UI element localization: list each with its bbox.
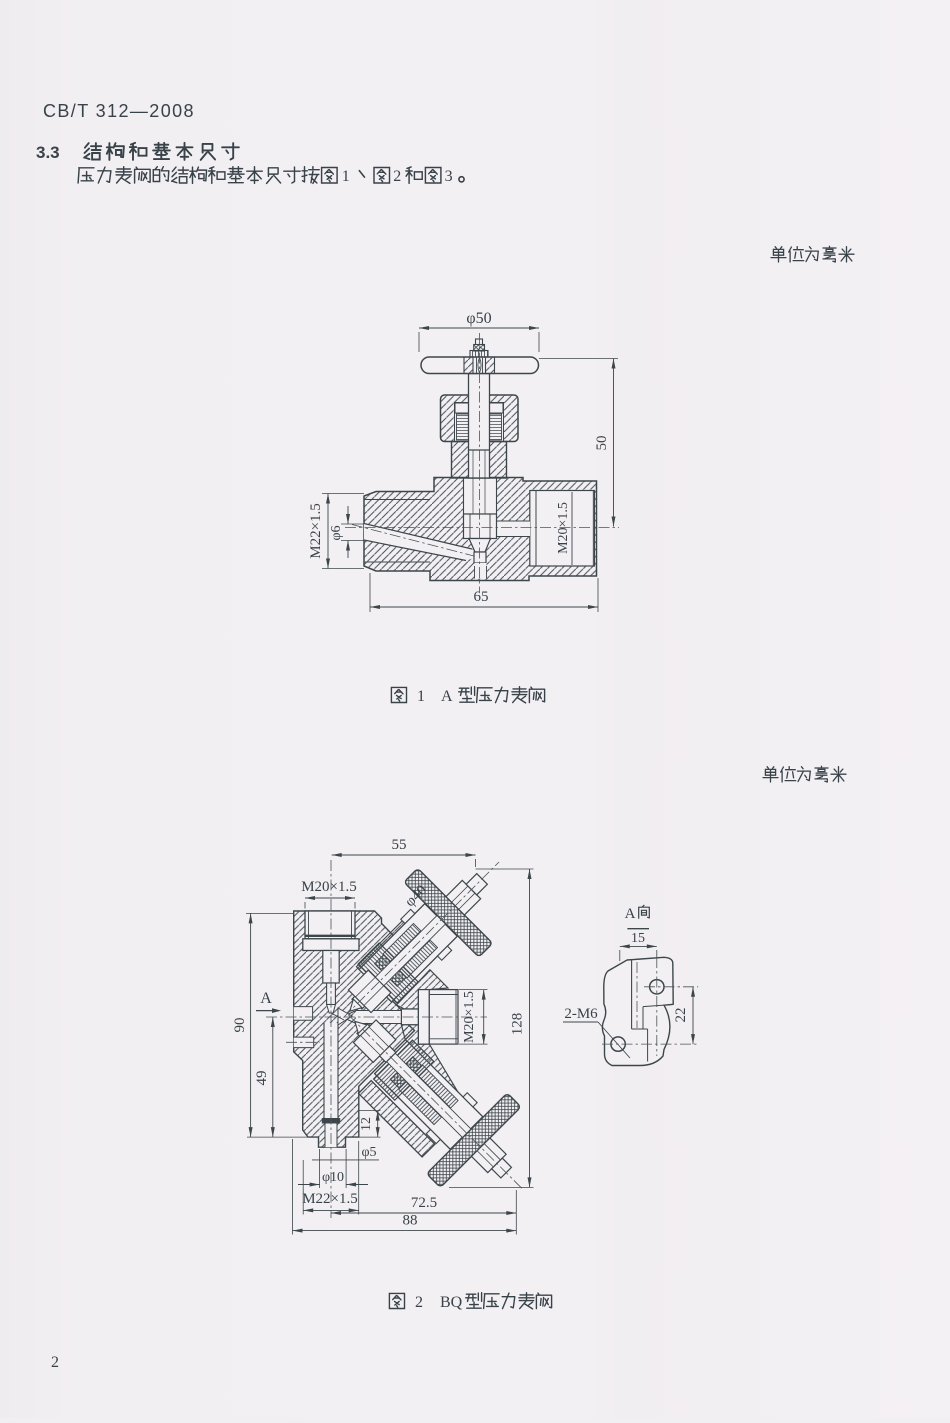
svg-text:2: 2	[51, 1354, 59, 1371]
svg-text:2: 2	[393, 168, 401, 185]
svg-text:3: 3	[445, 168, 453, 185]
svg-text:12: 12	[359, 1117, 374, 1131]
svg-text:M22×1.5: M22×1.5	[308, 503, 324, 559]
svg-text:50: 50	[594, 436, 610, 451]
svg-text:M22×1.5: M22×1.5	[302, 1191, 358, 1207]
svg-text:2-M6: 2-M6	[564, 1006, 598, 1022]
svg-text:55: 55	[392, 837, 407, 853]
svg-text:128: 128	[510, 1013, 526, 1036]
svg-text:M20×1.5: M20×1.5	[462, 991, 477, 1043]
svg-text:3.3: 3.3	[36, 143, 60, 162]
svg-text:M20×1.5: M20×1.5	[556, 502, 571, 554]
svg-text:A: A	[441, 688, 453, 705]
svg-text:φ6: φ6	[329, 525, 344, 540]
svg-text:A: A	[260, 990, 272, 1007]
svg-text:90: 90	[232, 1018, 248, 1033]
svg-text:φ50: φ50	[466, 310, 491, 327]
svg-text:CB/T 312—2008: CB/T 312—2008	[43, 101, 195, 121]
svg-text:φ10: φ10	[322, 1170, 344, 1185]
svg-text:15: 15	[631, 931, 645, 946]
svg-text:A: A	[625, 906, 636, 922]
svg-text:88: 88	[403, 1213, 418, 1229]
svg-text:65: 65	[474, 589, 489, 605]
svg-text:BQ: BQ	[440, 1294, 463, 1311]
svg-text:72.5: 72.5	[411, 1195, 437, 1211]
svg-text:1: 1	[417, 688, 425, 705]
svg-text:22: 22	[673, 1008, 689, 1023]
svg-text:M20×1.5: M20×1.5	[301, 879, 357, 895]
svg-text:2: 2	[415, 1294, 423, 1311]
svg-text:49: 49	[254, 1071, 270, 1086]
svg-text:1: 1	[342, 168, 350, 185]
svg-text:φ5: φ5	[361, 1145, 376, 1160]
